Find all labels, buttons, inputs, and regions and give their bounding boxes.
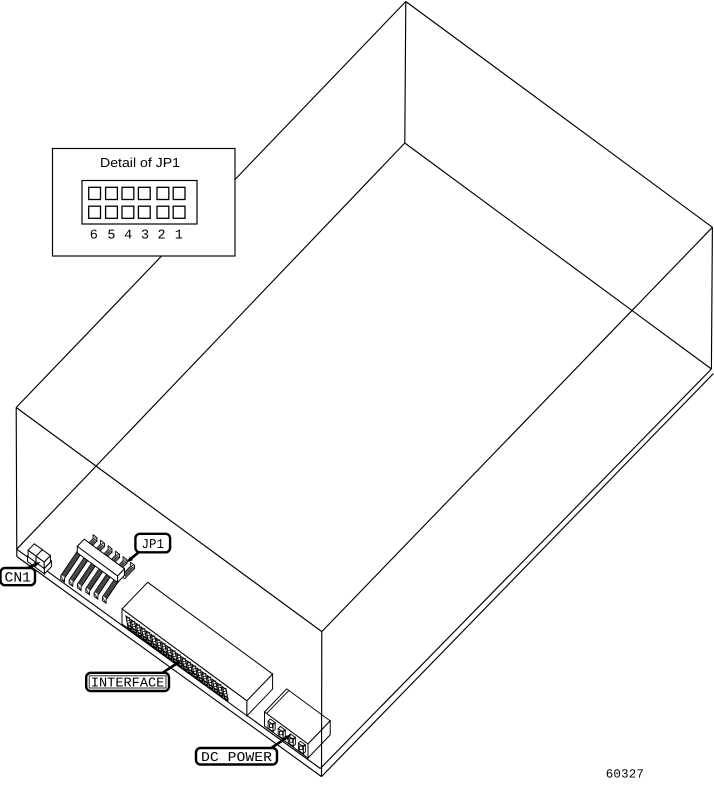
svg-text:JP1: JP1 [142, 538, 165, 553]
svg-text:3: 3 [141, 229, 149, 244]
svg-text:2: 2 [157, 229, 165, 244]
svg-text:5: 5 [107, 229, 115, 244]
svg-text:1: 1 [175, 229, 183, 244]
svg-text:Detail of JP1: Detail of JP1 [100, 155, 180, 170]
svg-text:DC POWER: DC POWER [201, 751, 272, 766]
svg-text:INTERFACE: INTERFACE [91, 677, 165, 692]
svg-text:4: 4 [124, 229, 132, 244]
svg-text:6: 6 [90, 229, 98, 244]
svg-text:60327: 60327 [606, 767, 644, 781]
svg-text:CN1: CN1 [5, 570, 32, 586]
